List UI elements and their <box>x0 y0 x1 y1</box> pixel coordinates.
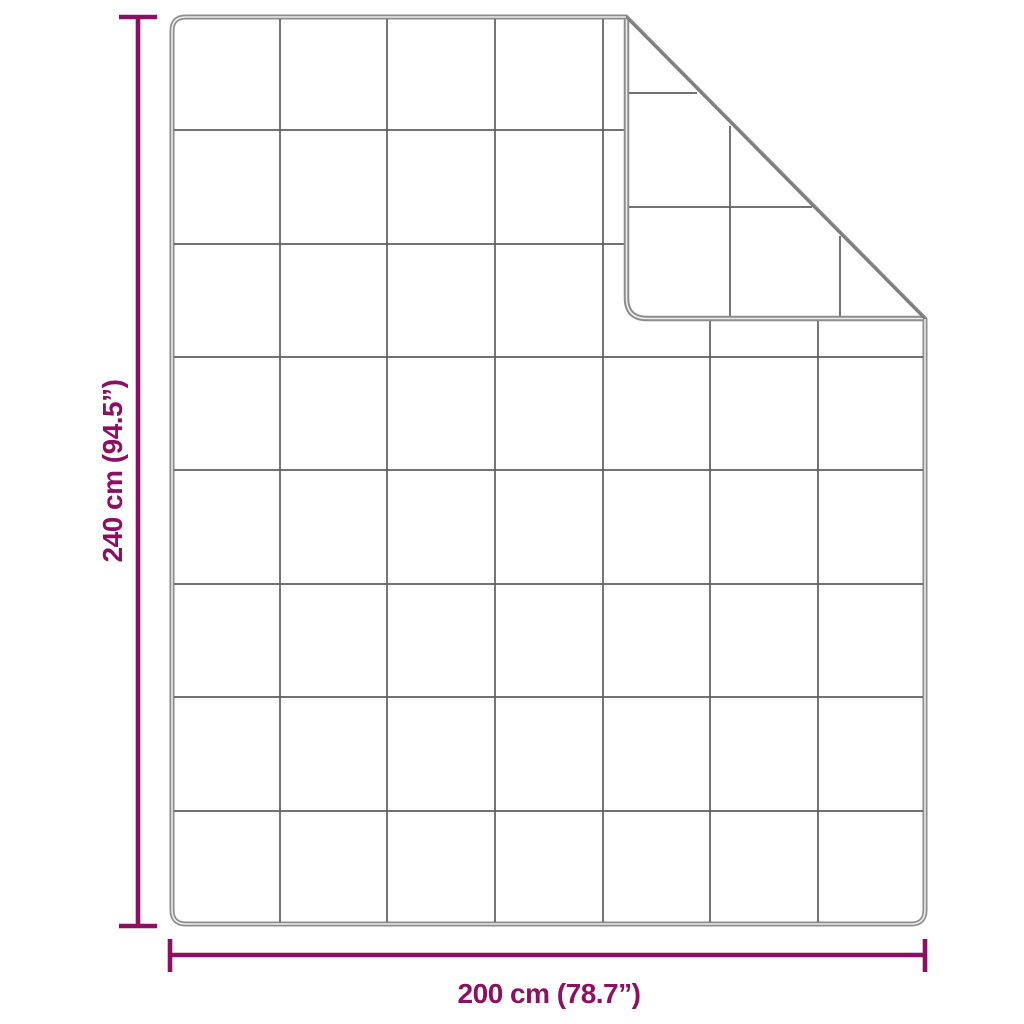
height-dimension: 240 cm (94.5”) <box>97 17 157 926</box>
width-dimension: 200 cm (78.7”) <box>170 939 925 1009</box>
blanket-dimension-diagram: 240 cm (94.5”) 200 cm (78.7”) <box>0 0 1024 1024</box>
height-dimension-label: 240 cm (94.5”) <box>97 380 128 563</box>
width-dimension-label: 200 cm (78.7”) <box>458 978 641 1009</box>
folded-corner-flap <box>626 17 925 319</box>
diagram-canvas: 240 cm (94.5”) 200 cm (78.7”) <box>0 0 1024 1024</box>
blanket <box>172 17 925 924</box>
